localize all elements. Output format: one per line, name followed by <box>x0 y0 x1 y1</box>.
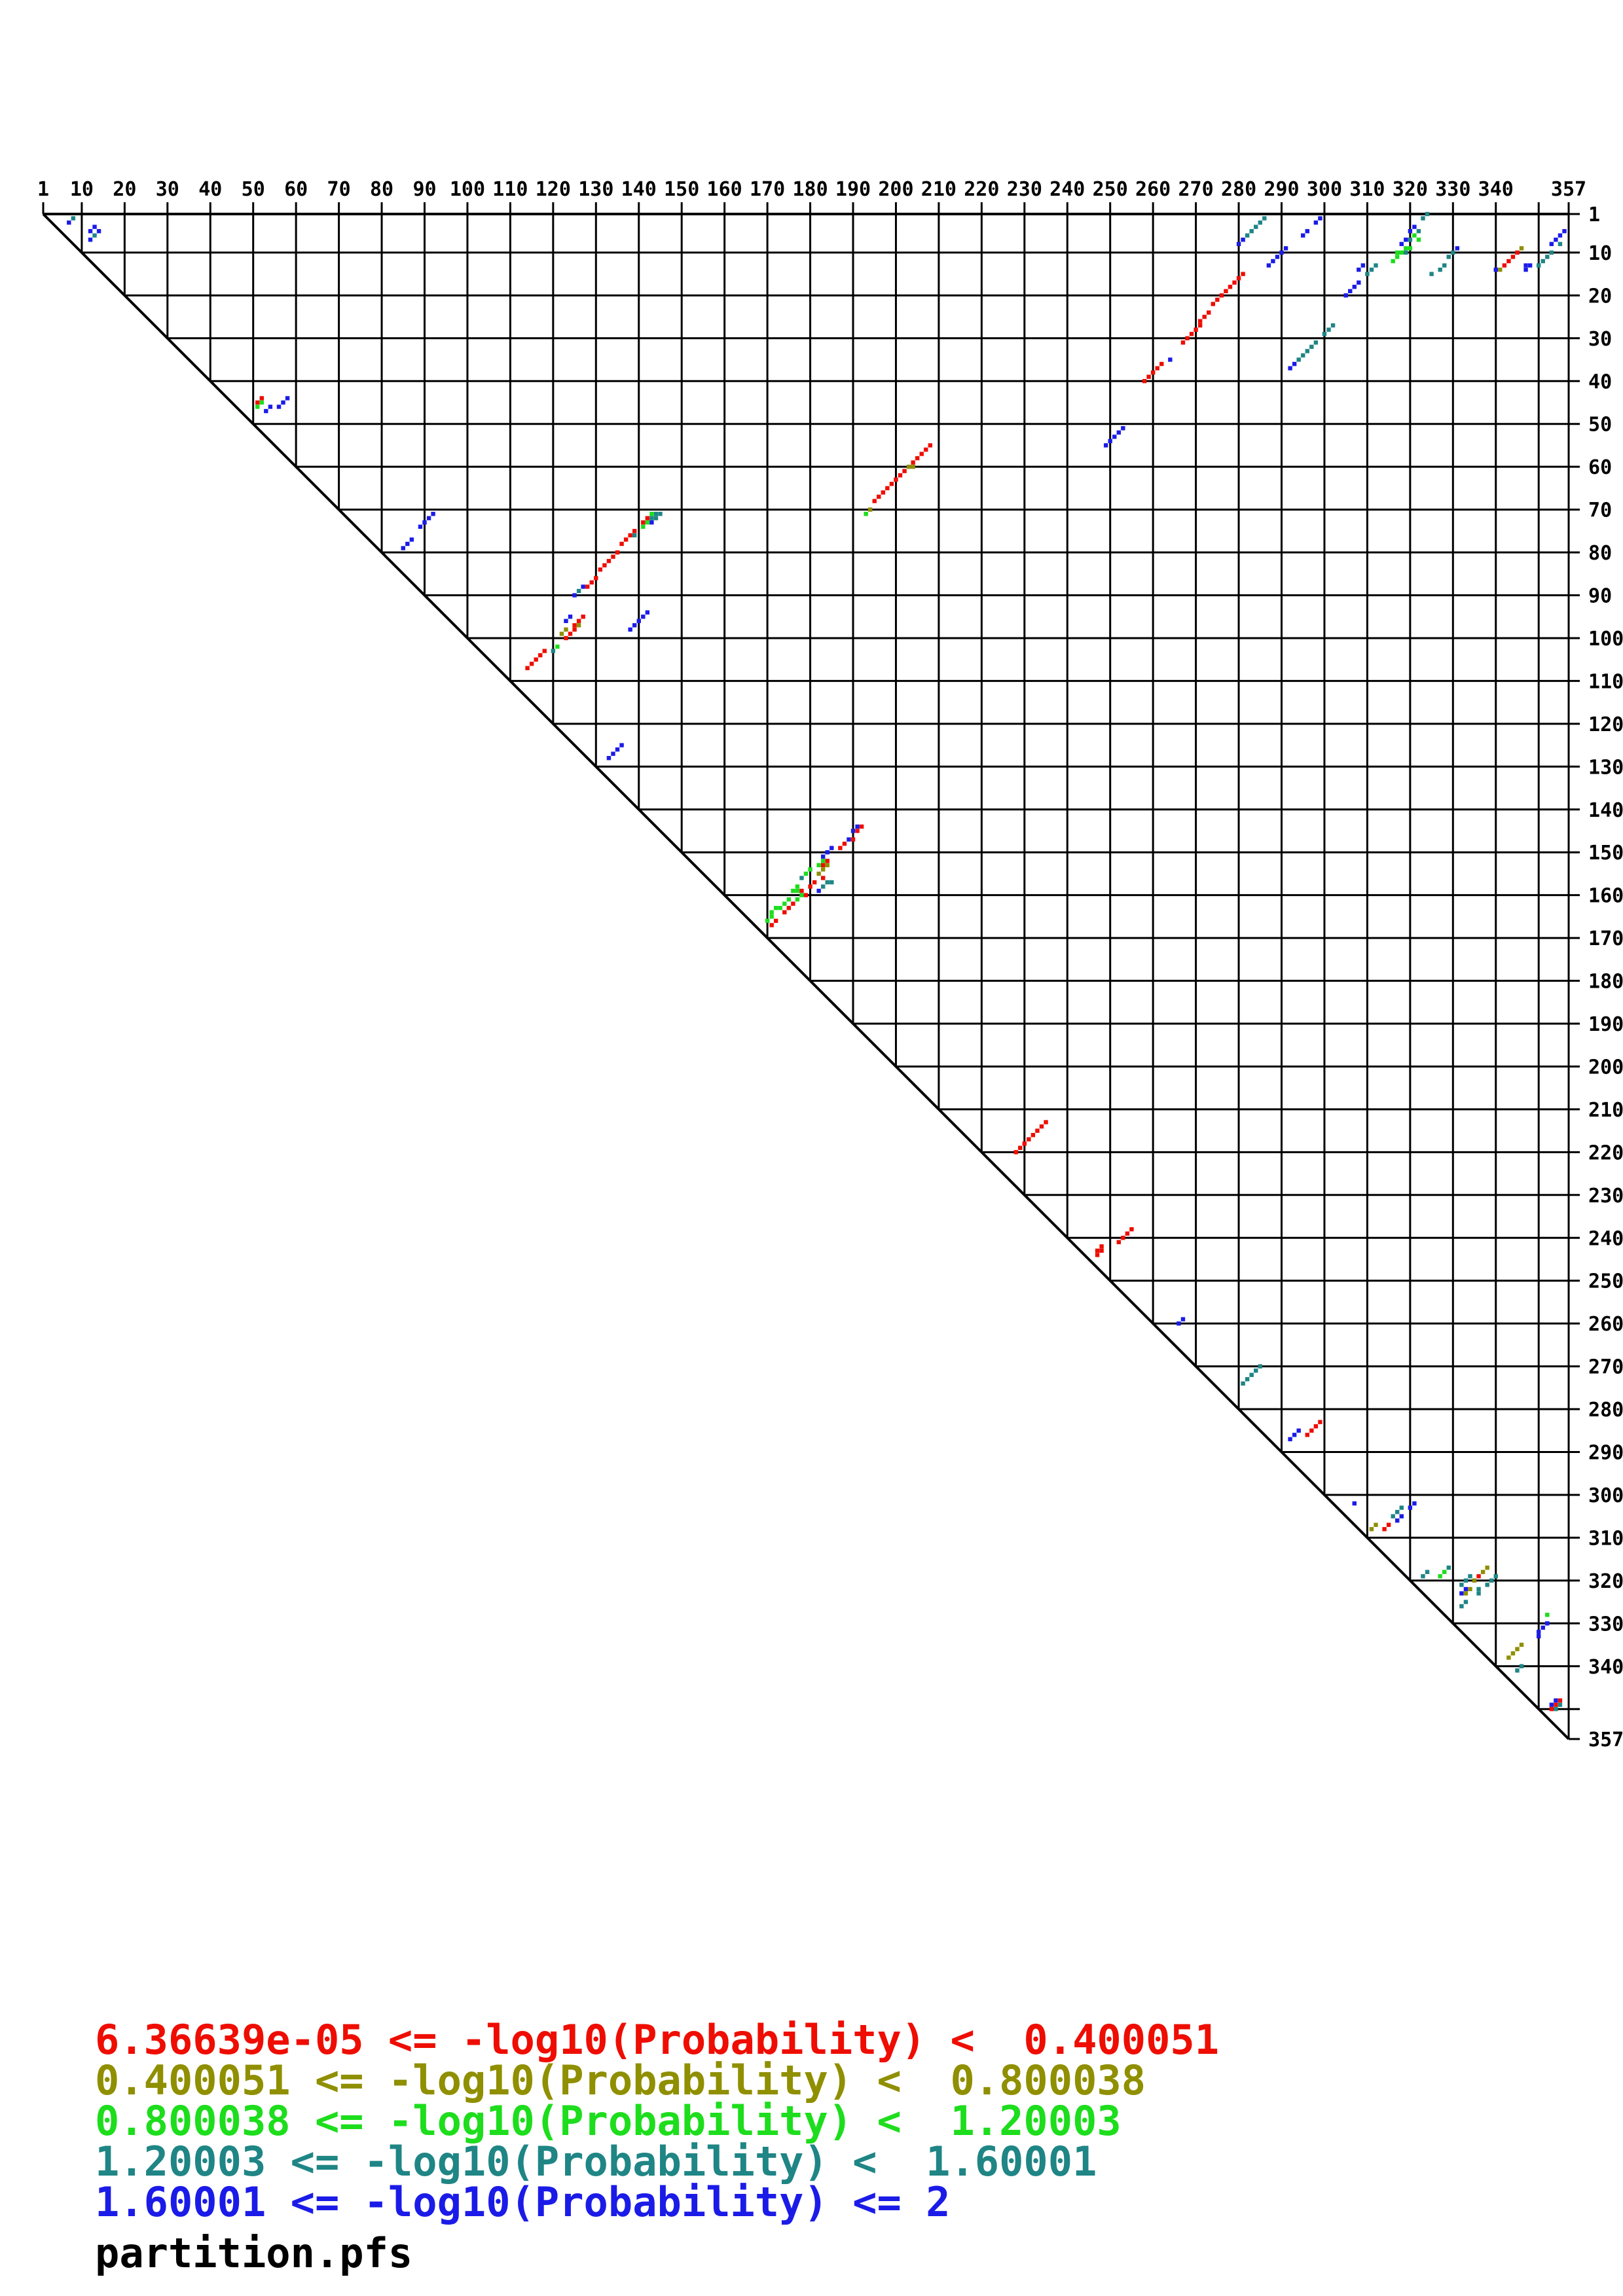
svg-text:100: 100 <box>450 178 485 201</box>
axis-lines <box>43 214 1569 1739</box>
dot-series <box>560 246 1523 1660</box>
svg-text:300: 300 <box>1588 1484 1623 1507</box>
svg-text:80: 80 <box>1588 542 1612 565</box>
right-axis-labels: 1102030405060708090100110120130140150160… <box>1588 204 1623 1751</box>
svg-text:260: 260 <box>1135 178 1171 201</box>
svg-text:1: 1 <box>1588 204 1600 226</box>
svg-text:210: 210 <box>1588 1099 1623 1122</box>
svg-text:240: 240 <box>1049 178 1085 201</box>
svg-text:270: 270 <box>1178 178 1214 201</box>
svg-text:330: 330 <box>1588 1613 1623 1636</box>
probability-dots <box>67 212 1567 1712</box>
svg-text:260: 260 <box>1588 1313 1623 1336</box>
svg-text:110: 110 <box>1588 670 1623 693</box>
svg-text:357: 357 <box>1551 178 1586 201</box>
svg-text:200: 200 <box>1588 1056 1623 1079</box>
legend-entry-green: 0.800038 <= -log10(Probability) < 1.2000… <box>95 2101 1219 2142</box>
svg-text:110: 110 <box>492 178 528 201</box>
svg-text:250: 250 <box>1588 1270 1623 1293</box>
svg-text:50: 50 <box>1588 414 1612 437</box>
svg-text:120: 120 <box>1588 713 1623 736</box>
svg-text:130: 130 <box>1588 756 1623 779</box>
svg-text:310: 310 <box>1588 1527 1623 1550</box>
svg-text:80: 80 <box>370 178 393 201</box>
svg-text:357: 357 <box>1588 1729 1623 1751</box>
legend-entry-red: 6.36639e-05 <= -log10(Probability) < 0.4… <box>95 2020 1219 2060</box>
svg-text:330: 330 <box>1435 178 1470 201</box>
svg-text:300: 300 <box>1307 178 1342 201</box>
tick-marks <box>43 202 1580 1739</box>
svg-text:150: 150 <box>1588 842 1623 865</box>
svg-text:270: 270 <box>1588 1356 1623 1379</box>
svg-text:230: 230 <box>1007 178 1042 201</box>
svg-text:90: 90 <box>1588 585 1612 608</box>
svg-text:20: 20 <box>113 178 136 201</box>
svg-text:320: 320 <box>1588 1570 1623 1593</box>
svg-text:320: 320 <box>1393 178 1428 201</box>
svg-text:1: 1 <box>37 178 49 201</box>
svg-text:150: 150 <box>664 178 699 201</box>
svg-text:190: 190 <box>835 178 871 201</box>
probability-plot-page: 1102030405060708090100110120130140150160… <box>0 0 1623 2296</box>
svg-text:50: 50 <box>242 178 265 201</box>
legend: 6.36639e-05 <= -log10(Probability) < 0.4… <box>95 2020 1219 2274</box>
svg-text:200: 200 <box>878 178 913 201</box>
svg-text:250: 250 <box>1093 178 1128 201</box>
top-axis-labels: 1102030405060708090100110120130140150160… <box>37 178 1586 201</box>
svg-text:140: 140 <box>1588 799 1623 822</box>
svg-text:10: 10 <box>70 178 94 201</box>
svg-text:60: 60 <box>1588 456 1612 479</box>
svg-text:60: 60 <box>284 178 308 201</box>
svg-text:30: 30 <box>156 178 179 201</box>
svg-text:160: 160 <box>707 178 742 201</box>
svg-text:30: 30 <box>1588 328 1612 351</box>
legend-entry-blue: 1.60001 <= -log10(Probability) <= 2 <box>95 2182 1219 2223</box>
svg-text:230: 230 <box>1588 1185 1623 1208</box>
svg-text:10: 10 <box>1588 242 1612 265</box>
dot-series <box>71 212 1563 1712</box>
svg-text:290: 290 <box>1264 178 1299 201</box>
svg-text:340: 340 <box>1478 178 1514 201</box>
svg-text:170: 170 <box>750 178 785 201</box>
svg-text:120: 120 <box>536 178 571 201</box>
svg-text:40: 40 <box>1588 370 1612 393</box>
file-name-label: partition.pfs <box>95 2233 1219 2274</box>
svg-text:20: 20 <box>1588 285 1612 308</box>
svg-text:240: 240 <box>1588 1227 1623 1250</box>
svg-text:220: 220 <box>1588 1141 1623 1164</box>
svg-text:280: 280 <box>1221 178 1256 201</box>
legend-entry-olive: 0.400051 <= -log10(Probability) < 0.8000… <box>95 2060 1219 2101</box>
svg-text:180: 180 <box>792 178 828 201</box>
grid-lines <box>82 214 1569 1739</box>
legend-entry-teal: 1.20003 <= -log10(Probability) < 1.60001 <box>95 2142 1219 2182</box>
svg-text:70: 70 <box>1588 499 1612 522</box>
svg-text:190: 190 <box>1588 1013 1623 1036</box>
svg-text:220: 220 <box>964 178 999 201</box>
svg-text:280: 280 <box>1588 1399 1623 1422</box>
svg-text:340: 340 <box>1588 1656 1623 1679</box>
svg-text:90: 90 <box>412 178 436 201</box>
svg-text:40: 40 <box>198 178 222 201</box>
probability-dot-plot: 1102030405060708090100110120130140150160… <box>0 0 1623 1898</box>
svg-text:160: 160 <box>1588 885 1623 908</box>
svg-text:170: 170 <box>1588 927 1623 950</box>
svg-text:310: 310 <box>1349 178 1385 201</box>
svg-text:180: 180 <box>1588 971 1623 994</box>
svg-text:290: 290 <box>1588 1442 1623 1465</box>
svg-text:70: 70 <box>327 178 351 201</box>
svg-text:130: 130 <box>578 178 613 201</box>
dot-series <box>67 216 1567 1707</box>
svg-text:140: 140 <box>621 178 657 201</box>
svg-text:210: 210 <box>921 178 957 201</box>
svg-text:100: 100 <box>1588 628 1623 651</box>
